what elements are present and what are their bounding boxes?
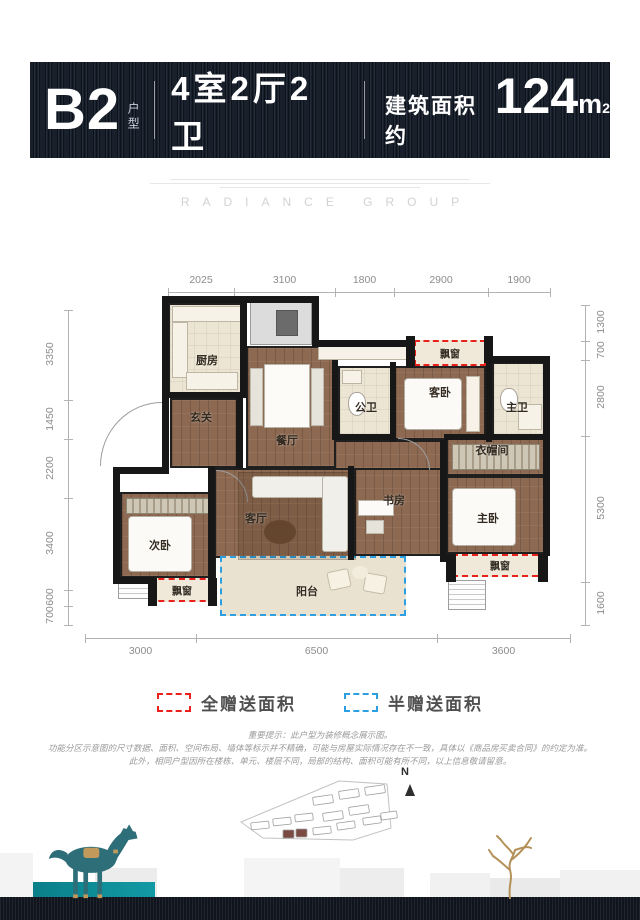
furniture-counter	[172, 322, 188, 378]
disclaimer: 重要提示：此户型为装修概念展示图。 功能分区示意图的尺寸数据、面积、空间布局、墙…	[0, 729, 640, 769]
floorplan-poster: B2 户型 4室2厅2卫 建筑面积约 124 m 2 RADIANCE GROU…	[0, 0, 640, 920]
room-label-balcony: 阳台	[296, 583, 318, 599]
room-label-foyer: 玄关	[190, 409, 212, 425]
skyline-block	[0, 853, 33, 900]
dimension-tick	[64, 590, 73, 591]
dimension-label: 1450	[44, 397, 56, 441]
skyline-block	[340, 868, 404, 900]
wall	[312, 340, 414, 347]
branch-illustration	[476, 831, 544, 899]
disclaimer-line: 重要提示：此户型为装修概念展示图。	[0, 729, 640, 742]
dimension-tick	[64, 400, 73, 401]
wall	[446, 554, 456, 582]
dimension-label: 2025	[179, 274, 223, 286]
site-building-highlighted	[283, 830, 294, 838]
dimension-tick	[64, 606, 73, 607]
dimension-label: 5300	[595, 486, 607, 530]
furniture-wardrobe	[126, 498, 210, 514]
furniture-arc	[100, 402, 162, 466]
dimension-label: 2900	[419, 274, 463, 286]
site-building	[273, 817, 292, 826]
dimension-label: 700	[595, 328, 607, 372]
site-building	[295, 813, 314, 822]
legend-item-half-gift: 半赠送面积	[344, 690, 483, 715]
dimension-tick	[437, 634, 438, 643]
dimension-tick	[581, 436, 590, 437]
wall	[440, 440, 447, 562]
site-building	[339, 789, 360, 800]
furniture-round	[264, 520, 296, 544]
site-building	[381, 811, 398, 820]
skyline-block	[244, 858, 340, 900]
site-building	[313, 826, 332, 835]
dimension-label: 3400	[44, 521, 56, 565]
room-label-bay-window-top: 飘窗	[440, 346, 460, 361]
dimension-label: 700	[44, 593, 56, 637]
wall	[162, 296, 316, 303]
legend-label: 全赠送面积	[201, 690, 296, 715]
dimension-label: 3000	[119, 645, 163, 657]
disclaimer-line: 此外，相同户型因所在楼栋、单元、楼层不同，局部的结构、面积可能有所不同，以上信息…	[0, 755, 640, 768]
furniture-sofa	[252, 476, 328, 498]
legend-swatch-blue	[344, 693, 378, 712]
furniture-counter	[186, 372, 238, 390]
north-arrow-icon	[405, 784, 415, 796]
furniture-chairs	[366, 520, 384, 534]
wall	[390, 362, 396, 442]
dimension-label: 3350	[44, 332, 56, 376]
furniture-panel	[276, 310, 298, 336]
furniture-chairs	[250, 368, 263, 426]
furniture-round	[352, 566, 368, 579]
disclaimer-line: 功能分区示意图的尺寸数据、面积、空间布局、墙体等标示并不精确，可能与房屋实际情况…	[0, 742, 640, 755]
horse-saddle	[83, 848, 99, 858]
room-label-bay-window-left: 飘窗	[172, 583, 192, 598]
room-label-closet: 衣帽间	[476, 442, 509, 458]
skyline-block	[560, 870, 640, 900]
dimension-tick	[581, 625, 590, 626]
legend-label: 半赠送面积	[388, 690, 483, 715]
site-building	[251, 821, 270, 830]
site-building-highlighted	[296, 829, 307, 837]
site-plan-map	[235, 772, 420, 856]
room-label-bay-window-right: 飘窗	[490, 558, 510, 573]
dimension-label: 1800	[343, 274, 387, 286]
wall	[240, 300, 247, 398]
site-buildings	[251, 785, 398, 838]
wall	[236, 396, 243, 468]
room-label-kitchen: 厨房	[196, 352, 218, 368]
dimension-line	[585, 305, 586, 625]
bottom-pinstripe-band	[0, 897, 640, 920]
furniture-sofa	[322, 476, 348, 552]
wall	[208, 578, 217, 606]
dimension-tick	[335, 288, 336, 297]
dimension-tick	[64, 498, 73, 499]
dimension-tick	[581, 341, 590, 342]
wall	[168, 392, 244, 398]
dimension-tick	[550, 288, 551, 297]
wall	[162, 296, 169, 474]
wall	[113, 467, 120, 584]
wall	[332, 360, 338, 440]
room-label-second-bedroom: 次卧	[149, 537, 171, 553]
furniture-chairs	[311, 368, 324, 426]
furniture-table	[264, 364, 310, 428]
dimension-tick	[64, 310, 73, 311]
room-label-master-bedroom: 主卧	[477, 510, 499, 526]
dimension-tick	[581, 360, 590, 361]
north-label: N	[401, 766, 409, 778]
legend: 全赠送面积 半赠送面积	[0, 690, 640, 715]
furniture-counter	[172, 306, 242, 322]
legend-swatch-red	[157, 693, 191, 712]
wall	[538, 554, 548, 582]
room-label-living: 客厅	[245, 510, 267, 526]
room-label-guest-bedroom: 客卧	[429, 384, 451, 400]
room-label-public-bath: 公卫	[355, 399, 377, 415]
room-label-study: 书房	[383, 492, 405, 508]
dimension-tick	[570, 634, 571, 643]
wall	[115, 467, 169, 474]
dimension-label: 1600	[595, 581, 607, 625]
dimension-tick	[64, 625, 73, 626]
dimension-tick	[196, 634, 197, 643]
site-building	[313, 795, 334, 806]
dimension-line	[68, 310, 69, 625]
furniture-counter	[466, 376, 480, 432]
dimension-tick	[64, 439, 73, 440]
dimension-tick	[581, 582, 590, 583]
dimension-line	[85, 638, 570, 639]
dimension-tick	[85, 634, 86, 643]
dimension-tick	[581, 305, 590, 306]
dimension-label: 6500	[295, 645, 339, 657]
wall	[332, 434, 396, 440]
site-building	[365, 785, 386, 796]
wall	[486, 356, 492, 442]
dimension-label: 1900	[497, 274, 541, 286]
wall	[148, 578, 157, 606]
site-building	[337, 821, 356, 830]
dimension-tick	[488, 288, 489, 297]
site-building	[349, 805, 370, 816]
legend-item-full-gift: 全赠送面积	[157, 690, 296, 715]
dimension-label: 2200	[44, 446, 56, 490]
furniture-ac	[448, 580, 486, 610]
room-label-dining: 餐厅	[276, 432, 298, 448]
dimension-label: 2800	[595, 375, 607, 419]
wall	[208, 466, 215, 580]
room-label-master-bath: 主卫	[506, 399, 528, 415]
dimension-tick	[394, 288, 395, 297]
wall	[444, 434, 548, 440]
wall	[406, 336, 415, 368]
site-building	[323, 811, 344, 822]
dimension-label: 3600	[482, 645, 526, 657]
site-building	[363, 816, 382, 825]
dimension-line	[168, 292, 550, 293]
dimension-label: 3100	[263, 274, 307, 286]
wall	[348, 466, 354, 560]
horse-statue-illustration	[36, 816, 142, 900]
wall	[543, 356, 550, 556]
site-plan: N	[235, 772, 420, 856]
furniture-counter	[342, 370, 362, 384]
wall	[484, 356, 550, 363]
